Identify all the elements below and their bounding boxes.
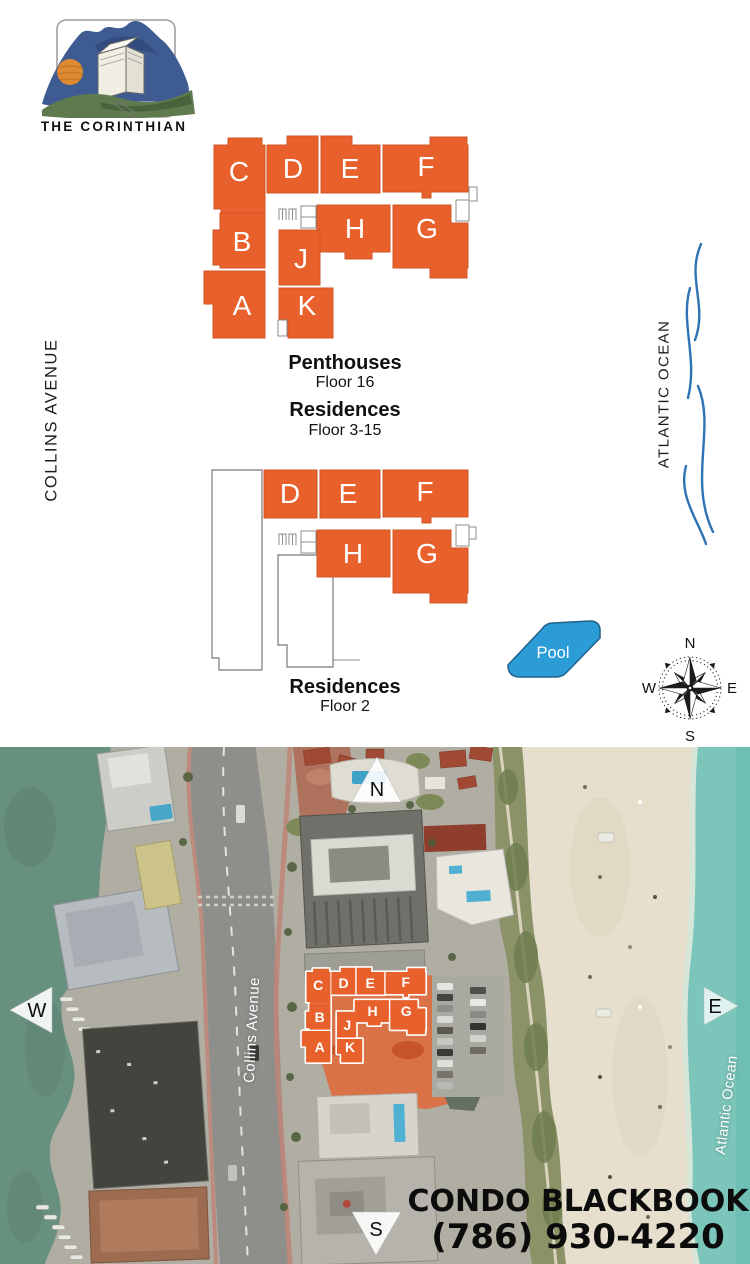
unit-label-h: H <box>345 213 365 244</box>
marker-w-label: W <box>28 1000 47 1022</box>
brand-name: CONDO BLACKBOOK <box>406 1185 750 1218</box>
compass-w-label: W <box>642 680 657 697</box>
unit-label-k: K <box>298 290 317 321</box>
terracotta-roof <box>424 824 487 852</box>
unit-label-a: A <box>233 290 252 321</box>
parking-lot <box>432 975 504 1097</box>
compass-s-label: S <box>685 728 695 745</box>
compass-e-label: E <box>727 680 737 697</box>
unit-label-b: B <box>233 226 252 257</box>
mini-label-d: D <box>338 975 348 991</box>
residences-floor: Floor 3-15 <box>200 422 490 440</box>
compass-rose-icon: N E S W <box>640 628 740 748</box>
lower-plan-caption: Residences Floor 2 <box>200 676 490 716</box>
marker-n-label: N <box>370 779 384 801</box>
mini-label-k: K <box>345 1039 355 1055</box>
unit-label-j: J <box>294 243 308 274</box>
marker-e-label: E <box>708 996 721 1018</box>
unit-label-f: F <box>417 151 434 182</box>
collins-avenue-label: COLLINS AVENUE <box>43 338 62 501</box>
flyer: THE CORINTHIAN COLLINS AVENUE ATLANTIC O… <box>0 0 750 1264</box>
residences2-title: Residences <box>200 676 490 698</box>
unit2-label-g: G <box>416 538 438 569</box>
unit-label-g: G <box>416 213 438 244</box>
residences-title: Residences <box>200 399 490 421</box>
residences2-floor: Floor 2 <box>200 698 490 716</box>
mini-label-e: E <box>366 975 375 991</box>
pool-shape: Pool <box>495 614 615 692</box>
floorplan-upper: C D E F B H G J A K <box>200 130 490 350</box>
unit-label-d: D <box>283 153 303 184</box>
phone-number: (786) 930-4220 <box>406 1218 750 1257</box>
dark-roof-building <box>83 1021 209 1189</box>
unit2-label-h: H <box>343 538 363 569</box>
ocean-waves-icon <box>668 230 738 560</box>
penthouses-floor: Floor 16 <box>200 374 490 392</box>
contact-banner: CONDO BLACKBOOK (786) 930-4220 <box>406 1185 750 1257</box>
penthouses-title: Penthouses <box>200 352 490 374</box>
brown-roof-building <box>89 1187 209 1263</box>
marker-s-label: S <box>369 1219 382 1241</box>
unit-label-c: C <box>229 156 249 187</box>
mini-label-j: J <box>343 1017 351 1033</box>
mini-label-c: C <box>313 977 323 993</box>
corinthian-logo-icon <box>40 6 200 118</box>
unit2-label-f: F <box>416 476 433 507</box>
mini-label-g: G <box>401 1003 412 1019</box>
unit2-label-d: D <box>280 478 300 509</box>
compass-n-label: N <box>685 635 696 652</box>
mini-label-h: H <box>367 1003 377 1019</box>
mini-label-a: A <box>315 1039 325 1055</box>
mini-label-b: B <box>315 1009 325 1025</box>
unit2-label-e: E <box>339 478 358 509</box>
logo-title: THE CORINTHIAN <box>30 119 198 134</box>
north-tower <box>300 810 429 948</box>
mini-label-f: F <box>401 974 410 990</box>
upper-plan-caption: Penthouses Floor 16 Residences Floor 3-1… <box>200 352 490 440</box>
pool-label: Pool <box>536 644 569 662</box>
unit-label-e: E <box>341 153 360 184</box>
